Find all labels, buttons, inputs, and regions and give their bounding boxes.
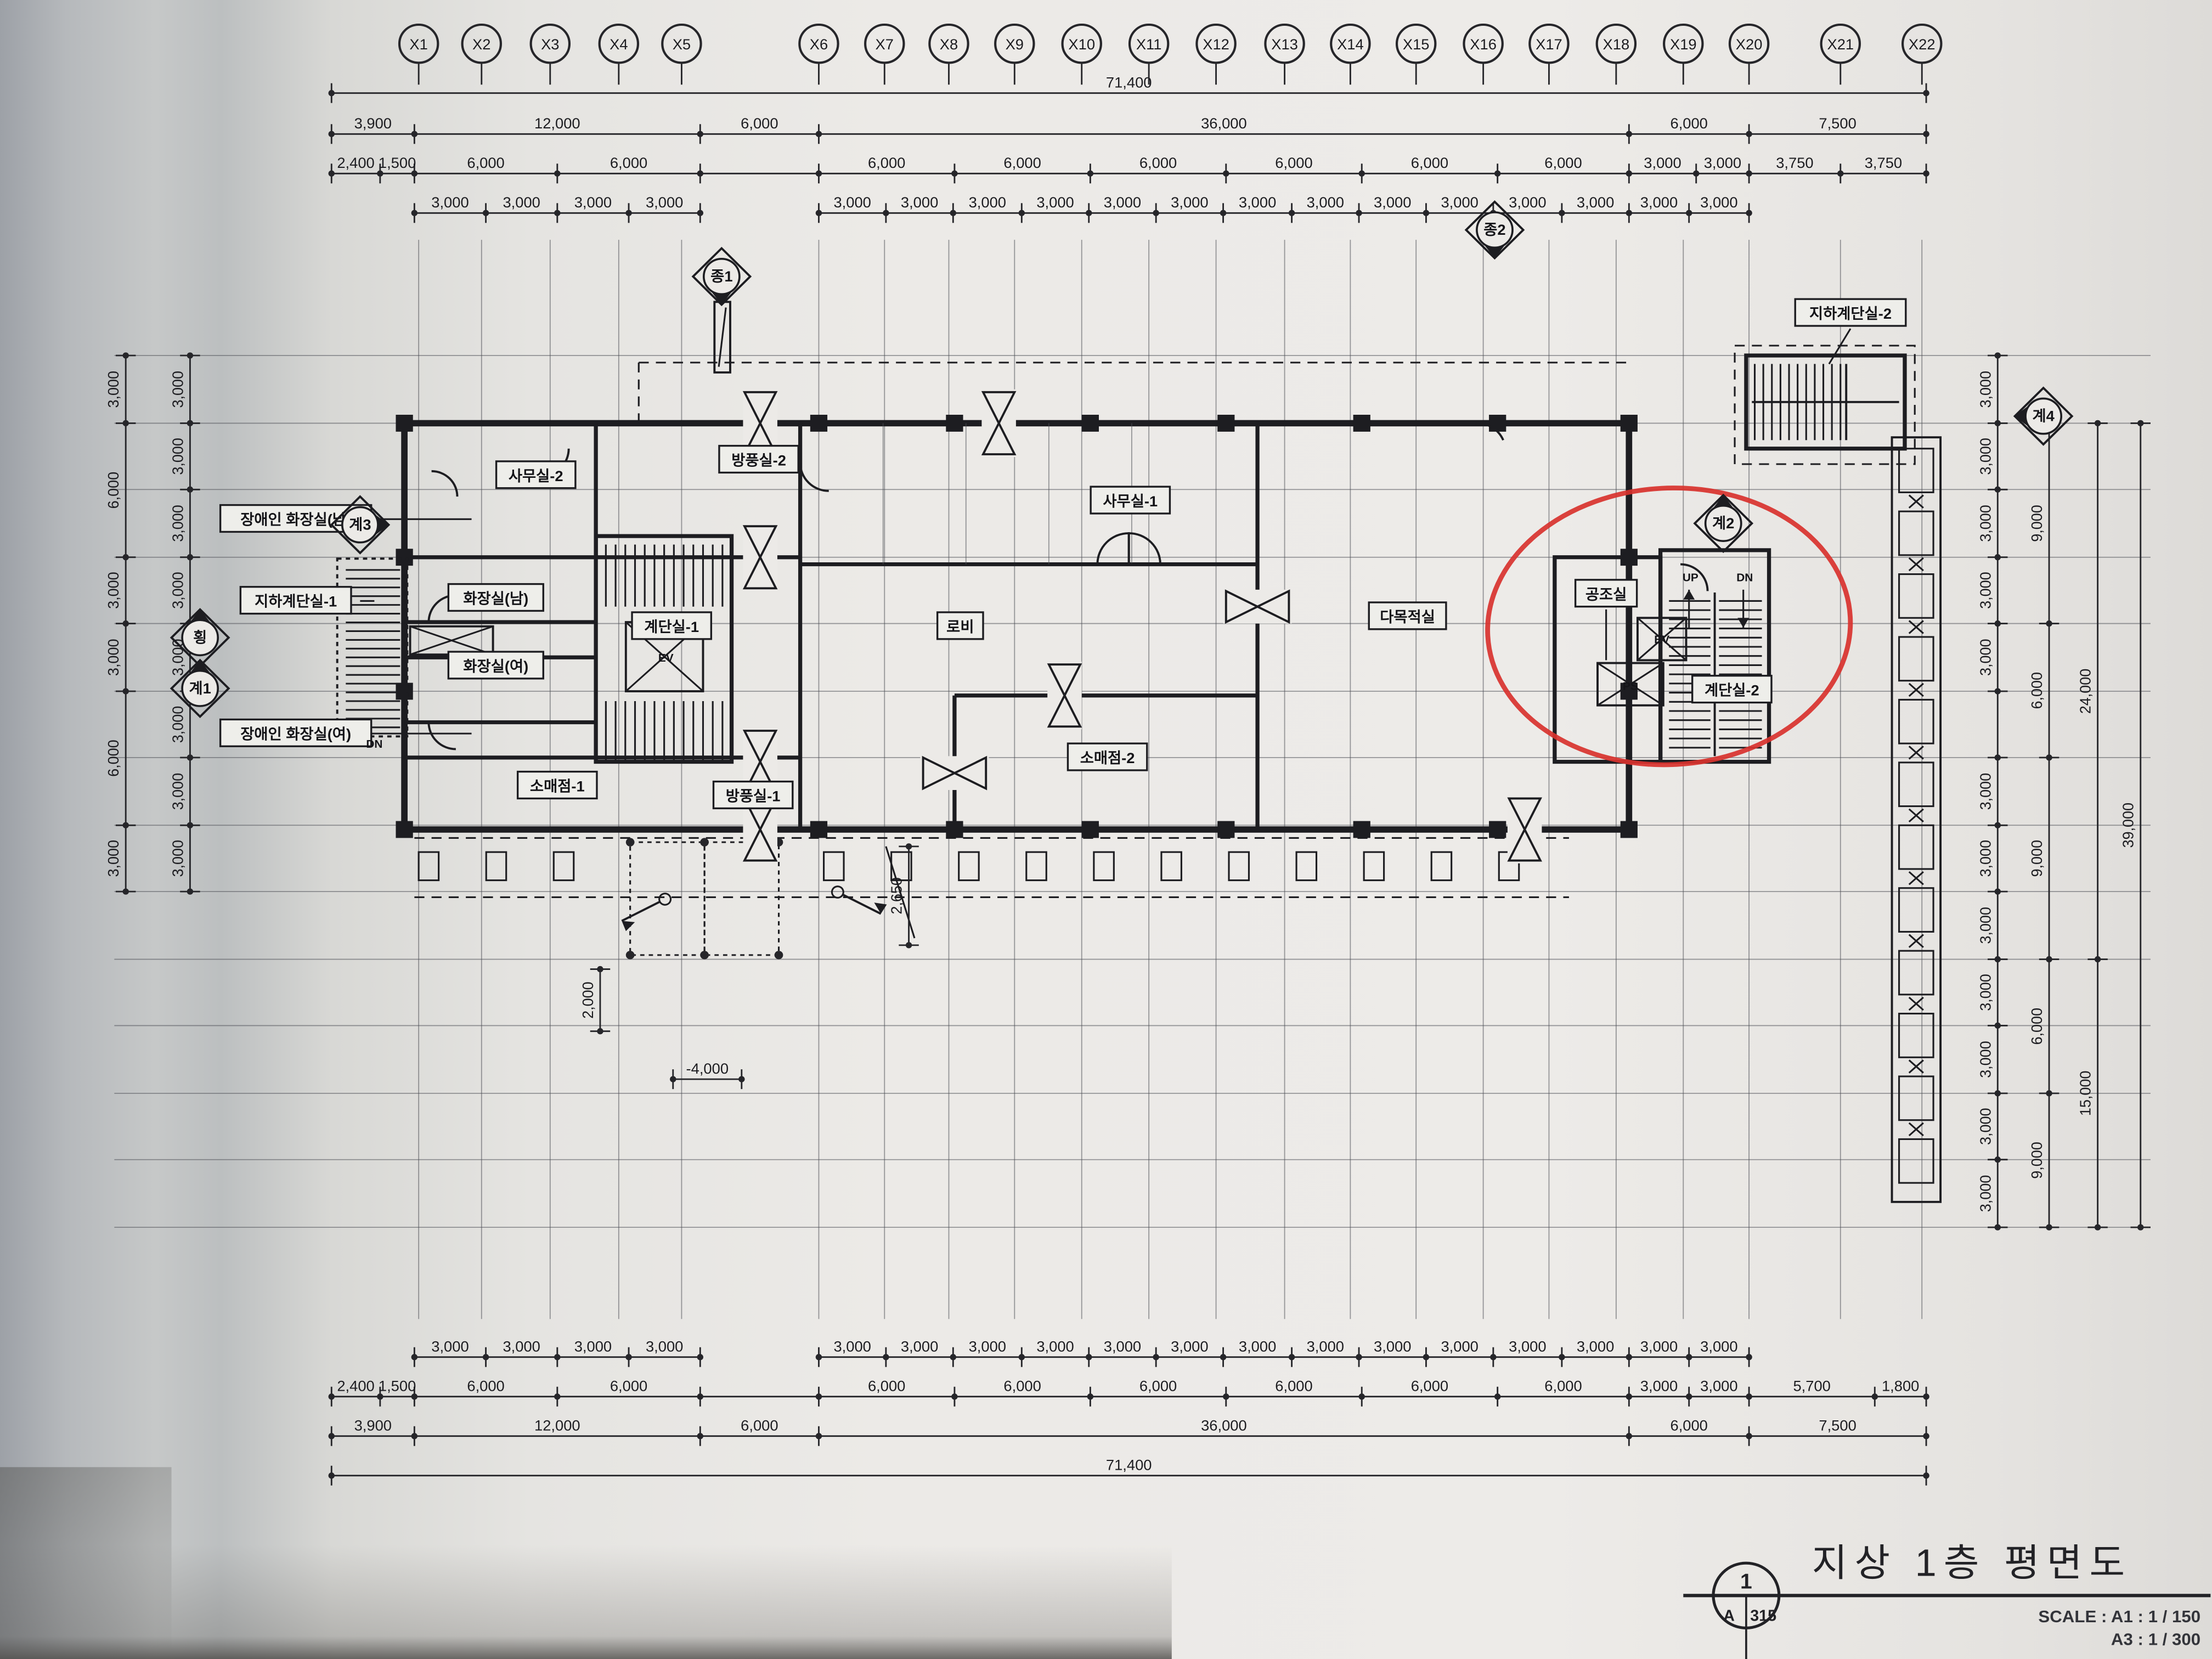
dim-label: 6,000	[105, 740, 122, 777]
dim-label: 3,000	[1644, 154, 1681, 171]
dim-label: 1,800	[1882, 1378, 1919, 1395]
dim-label: 9,000	[2028, 840, 2045, 877]
room-label-gyedansil1: 계단실-1	[632, 612, 711, 639]
svg-text:X7: X7	[876, 36, 894, 53]
dim-label: 3,000	[169, 572, 186, 609]
svg-text:화장실(여): 화장실(여)	[463, 658, 528, 675]
dim-label: 12,000	[534, 115, 580, 132]
svg-text:X5: X5	[673, 36, 691, 53]
svg-text:종1: 종1	[710, 268, 732, 285]
double-door	[1047, 662, 1082, 729]
dim-label: 3,000	[169, 706, 186, 743]
room-label-jiha_gyedan1: 지하계단실-1	[240, 587, 351, 614]
dim-label: 3,000	[1640, 1338, 1678, 1355]
dim-label: 36,000	[1201, 1417, 1247, 1434]
dim-label: 3,000	[169, 438, 186, 475]
room-label-samusil2: 사무실-2	[496, 461, 575, 488]
dim-label: 3,000	[1977, 1175, 1994, 1212]
dim-label: 3,000	[1977, 974, 1994, 1011]
svg-text:X13: X13	[1271, 36, 1298, 53]
sheet-row: A	[1723, 1607, 1735, 1625]
room-label-gyedansil2: 계단실-2	[1692, 676, 1771, 703]
dim-label: 3,900	[354, 1417, 392, 1434]
dim-label: 9,000	[2028, 505, 2045, 542]
dim-label: -4,000	[686, 1060, 729, 1077]
dim-label: 6,000	[1670, 1417, 1707, 1434]
dim-label: 6,000	[1544, 154, 1582, 171]
svg-text:X17: X17	[1536, 36, 1562, 53]
svg-text:X18: X18	[1603, 36, 1630, 53]
room-label-damokjeok: 다목적실	[1369, 602, 1446, 629]
dim-label: 3,750	[1865, 154, 1902, 171]
text-dn_west: DN	[366, 738, 382, 751]
dim-label: 3,000	[574, 1338, 612, 1355]
dim-label: 24,000	[2076, 669, 2093, 714]
paper-bottom-shadow	[0, 1545, 1172, 1659]
dim-label: 3,900	[354, 115, 392, 132]
dim-label: 3,000	[1977, 639, 1994, 676]
dim-label: 3,000	[1509, 1338, 1546, 1355]
dim-label: 3,000	[503, 1338, 540, 1355]
dim-label: 3,000	[1374, 194, 1411, 211]
dim-label: 6,000	[868, 154, 905, 171]
text-ev2: EV	[1654, 634, 1669, 646]
svg-text:장애인 화장실(남): 장애인 화장실(남)	[240, 511, 351, 528]
dim-label: 3,000	[833, 194, 871, 211]
dim-label: 3,000	[1640, 1378, 1678, 1395]
svg-text:X9: X9	[1006, 36, 1024, 53]
svg-text:지하계단실-1: 지하계단실-1	[255, 593, 337, 610]
dim-label: 2,400	[337, 154, 374, 171]
dim-label: 2,400	[337, 1378, 374, 1395]
dim-label: 6,000	[2028, 672, 2045, 709]
dim-label: 6,000	[610, 1378, 647, 1395]
dim-label: 3,000	[1977, 438, 1994, 475]
dim-label: 3,000	[1441, 1338, 1478, 1355]
svg-text:계4: 계4	[2032, 408, 2054, 425]
paper-corner-shadow	[0, 1467, 172, 1659]
dim-label: 9,000	[2028, 1142, 2045, 1179]
dim-label: 6,000	[1411, 154, 1448, 171]
text-up1: UP	[1683, 572, 1699, 584]
dim-label: 6,000	[1003, 154, 1041, 171]
svg-text:X22: X22	[1909, 36, 1936, 53]
dim-label: 1,500	[379, 154, 416, 171]
dim-label: 3,000	[169, 371, 186, 408]
dim-label: 71,400	[1106, 1457, 1152, 1474]
dim-label: 3,000	[901, 1338, 938, 1355]
dim-label: 3,000	[1104, 194, 1141, 211]
svg-text:지하계단실-2: 지하계단실-2	[1809, 305, 1892, 322]
svg-text:X11: X11	[1136, 36, 1162, 53]
dim-label: 3,000	[1704, 154, 1741, 171]
dim-label: 6,000	[467, 1378, 504, 1395]
double-door	[1223, 590, 1292, 624]
dim-label: 3,000	[169, 505, 186, 542]
dim-label: 3,000	[1307, 194, 1344, 211]
svg-text:사무실-2: 사무실-2	[509, 467, 563, 484]
svg-text:방풍실-1: 방풍실-1	[726, 788, 781, 805]
text-dn1: DN	[1736, 572, 1753, 584]
dim-label: 3,000	[833, 1338, 871, 1355]
svg-text:X10: X10	[1068, 36, 1095, 53]
room-label-lobby: 로비	[938, 612, 983, 639]
dim-label: 3,000	[169, 773, 186, 810]
dim-label: 3,000	[1171, 1338, 1208, 1355]
svg-text:X20: X20	[1736, 36, 1763, 53]
dim-label: 15,000	[2076, 1071, 2093, 1116]
svg-text:횡: 횡	[193, 629, 207, 646]
dim-label: 3,000	[1239, 1338, 1276, 1355]
dim-label: 3,000	[431, 1338, 469, 1355]
svg-text:장애인 화장실(여): 장애인 화장실(여)	[240, 726, 351, 743]
svg-text:X19: X19	[1670, 36, 1697, 53]
svg-text:X3: X3	[541, 36, 559, 53]
dim-label: 3,000	[1700, 1378, 1737, 1395]
dim-label: 6,000	[1411, 1378, 1448, 1395]
dim-label: 3,750	[1776, 154, 1813, 171]
room-label-somae1: 소매점-1	[518, 772, 597, 799]
svg-text:X2: X2	[472, 36, 490, 53]
double-door	[743, 523, 777, 591]
dim-label: 3,000	[1700, 1338, 1737, 1355]
svg-text:소매점-1: 소매점-1	[530, 778, 585, 795]
svg-text:X15: X15	[1403, 36, 1430, 53]
double-door	[920, 756, 989, 790]
photo-of-floor-plan: { "colors": { "paper": "#eae9e6", "ink":…	[0, 0, 2212, 1659]
svg-text:사무실-1: 사무실-1	[1103, 493, 1158, 510]
svg-text:방풍실-2: 방풍실-2	[731, 452, 786, 469]
svg-text:공조실: 공조실	[1585, 586, 1627, 603]
dim-label: 36,000	[1201, 115, 1247, 132]
floor-plan-photo: 71,4003,90012,0006,00036,0006,0007,5002,…	[0, 0, 2212, 1659]
svg-text:계2: 계2	[1712, 515, 1734, 532]
dim-label: 3,000	[1509, 194, 1546, 211]
dim-label: 3,000	[1977, 907, 1994, 944]
dim-label: 3,000	[969, 194, 1006, 211]
svg-text:계단실-2: 계단실-2	[1705, 682, 1759, 699]
dim-label: 7,500	[1819, 115, 1856, 132]
room-label-samusil1: 사무실-1	[1091, 487, 1170, 513]
dim-label: 3,000	[1307, 1338, 1344, 1355]
dim-label: 3,000	[431, 194, 469, 211]
dim-label: 3,000	[1239, 194, 1276, 211]
dim-label: 6,000	[741, 1417, 778, 1434]
svg-text:소매점-2: 소매점-2	[1080, 749, 1135, 766]
text-ps2: PS	[1623, 680, 1638, 693]
dim-label: 3,000	[105, 572, 122, 609]
dim-label: 3,000	[1977, 371, 1994, 408]
room-label-bangpung2: 방풍실-2	[719, 446, 798, 473]
dim-label: 6,000	[467, 154, 504, 171]
dim-label: 6,000	[1670, 115, 1707, 132]
svg-text:X6: X6	[810, 36, 828, 53]
svg-text:화장실(남): 화장실(남)	[463, 590, 528, 607]
dim-label: 3,000	[1700, 194, 1737, 211]
svg-text:로비: 로비	[946, 618, 974, 635]
dim-label: 3,000	[105, 840, 122, 877]
dim-label: 6,000	[105, 472, 122, 509]
dim-label: 3,000	[1441, 194, 1478, 211]
svg-text:다목적실: 다목적실	[1380, 608, 1435, 625]
dim-label: 3,000	[1374, 1338, 1411, 1355]
dim-label: 3,000	[105, 639, 122, 676]
room-label-jangae_yeo: 장애인 화장실(여)	[221, 719, 371, 746]
double-door	[1508, 795, 1542, 863]
dim-label: 3,000	[646, 194, 683, 211]
dim-label: 3,000	[1640, 194, 1678, 211]
sheet-number: 1	[1740, 1570, 1752, 1594]
dim-label: 3,000	[503, 194, 540, 211]
dim-label: 39,000	[2120, 803, 2137, 848]
text-ev1: EV	[658, 652, 674, 664]
dim-label: 3,000	[1977, 1108, 1994, 1145]
svg-text:X12: X12	[1203, 36, 1229, 53]
dim-label: 3,000	[1577, 194, 1614, 211]
dim-label: 6,000	[1544, 1378, 1582, 1395]
svg-text:X16: X16	[1470, 36, 1497, 53]
dim-label: 3,000	[1104, 1338, 1141, 1355]
svg-text:X1: X1	[409, 36, 427, 53]
room-label-jiha_gyedan2: 지하계단실-2	[1795, 299, 1906, 326]
dim-label: 6,000	[1003, 1378, 1041, 1395]
scale-a1: SCALE : A1 : 1 / 150	[2038, 1607, 2200, 1626]
dim-label: 3,000	[574, 194, 612, 211]
dim-label: 6,000	[1275, 1378, 1312, 1395]
dim-label: 6,000	[741, 115, 778, 132]
dim-label: 3,000	[169, 840, 186, 877]
dim-label: 2,650	[888, 877, 905, 915]
room-label-hwajang_yeo: 화장실(여)	[448, 652, 543, 679]
room-label-bangpung1: 방풍실-1	[714, 782, 793, 809]
svg-text:X8: X8	[940, 36, 958, 53]
dim-label: 3,000	[969, 1338, 1006, 1355]
dim-label: 3,000	[1977, 505, 1994, 542]
dim-label: 3,000	[1036, 194, 1074, 211]
dim-label: 1,500	[379, 1378, 416, 1395]
dim-label: 6,000	[1139, 154, 1177, 171]
dim-label: 3,000	[901, 194, 938, 211]
dim-label: 6,000	[610, 154, 647, 171]
dim-label: 7,500	[1819, 1417, 1856, 1434]
floor-plan-drawing: 71,4003,90012,0006,00036,0006,0007,5002,…	[0, 0, 2212, 1659]
sheet-num: 315	[1750, 1607, 1776, 1625]
drawing-title: 지상 1층 평면도	[1812, 1542, 2132, 1584]
dim-label: 3,000	[1977, 1041, 1994, 1078]
dim-label: 12,000	[534, 1417, 580, 1434]
room-label-gongjosil: 공조실	[1576, 580, 1637, 607]
double-door	[981, 390, 1016, 457]
dim-label: 3,000	[105, 371, 122, 408]
dim-label: 2,000	[579, 981, 596, 1019]
dim-label: 3,000	[1036, 1338, 1074, 1355]
svg-text:X14: X14	[1337, 36, 1364, 53]
dim-label: 3,000	[1577, 1338, 1614, 1355]
svg-text:계3: 계3	[349, 516, 371, 533]
svg-text:X4: X4	[610, 36, 628, 53]
dim-label: 3,000	[1977, 572, 1994, 609]
dim-label: 6,000	[1139, 1378, 1177, 1395]
room-label-hwajang_nam: 화장실(남)	[448, 584, 543, 611]
svg-text:계1: 계1	[189, 680, 211, 697]
dim-label: 71,400	[1106, 74, 1152, 91]
dim-label: 6,000	[1275, 154, 1312, 171]
dim-label: 3,000	[1171, 194, 1208, 211]
dim-label: 3,000	[1977, 773, 1994, 810]
dim-label: 3,000	[646, 1338, 683, 1355]
dim-label: 5,700	[1793, 1378, 1830, 1395]
scale-a3: A3 : 1 / 300	[2111, 1629, 2200, 1649]
dim-label: 3,000	[1977, 840, 1994, 877]
svg-text:X21: X21	[1827, 36, 1854, 53]
svg-text:종2: 종2	[1483, 221, 1505, 238]
svg-text:계단실-1: 계단실-1	[644, 618, 699, 635]
dim-label: 6,000	[2028, 1008, 2045, 1045]
dim-label: 6,000	[868, 1378, 905, 1395]
room-label-somae2: 소매점-2	[1068, 743, 1147, 770]
